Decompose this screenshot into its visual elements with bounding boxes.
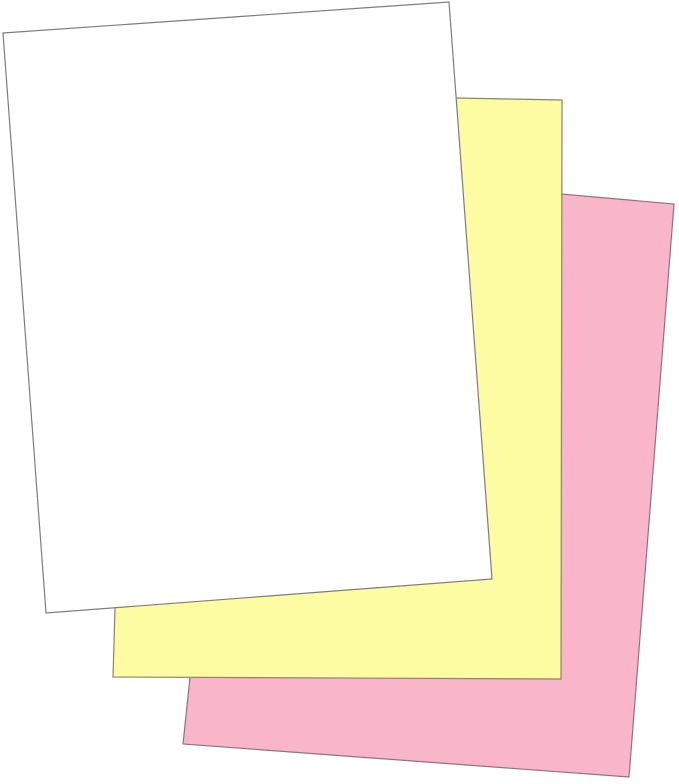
white-sheet [3, 2, 492, 613]
paper-stack-canvas [0, 0, 679, 784]
paper-stack-image [0, 0, 679, 784]
